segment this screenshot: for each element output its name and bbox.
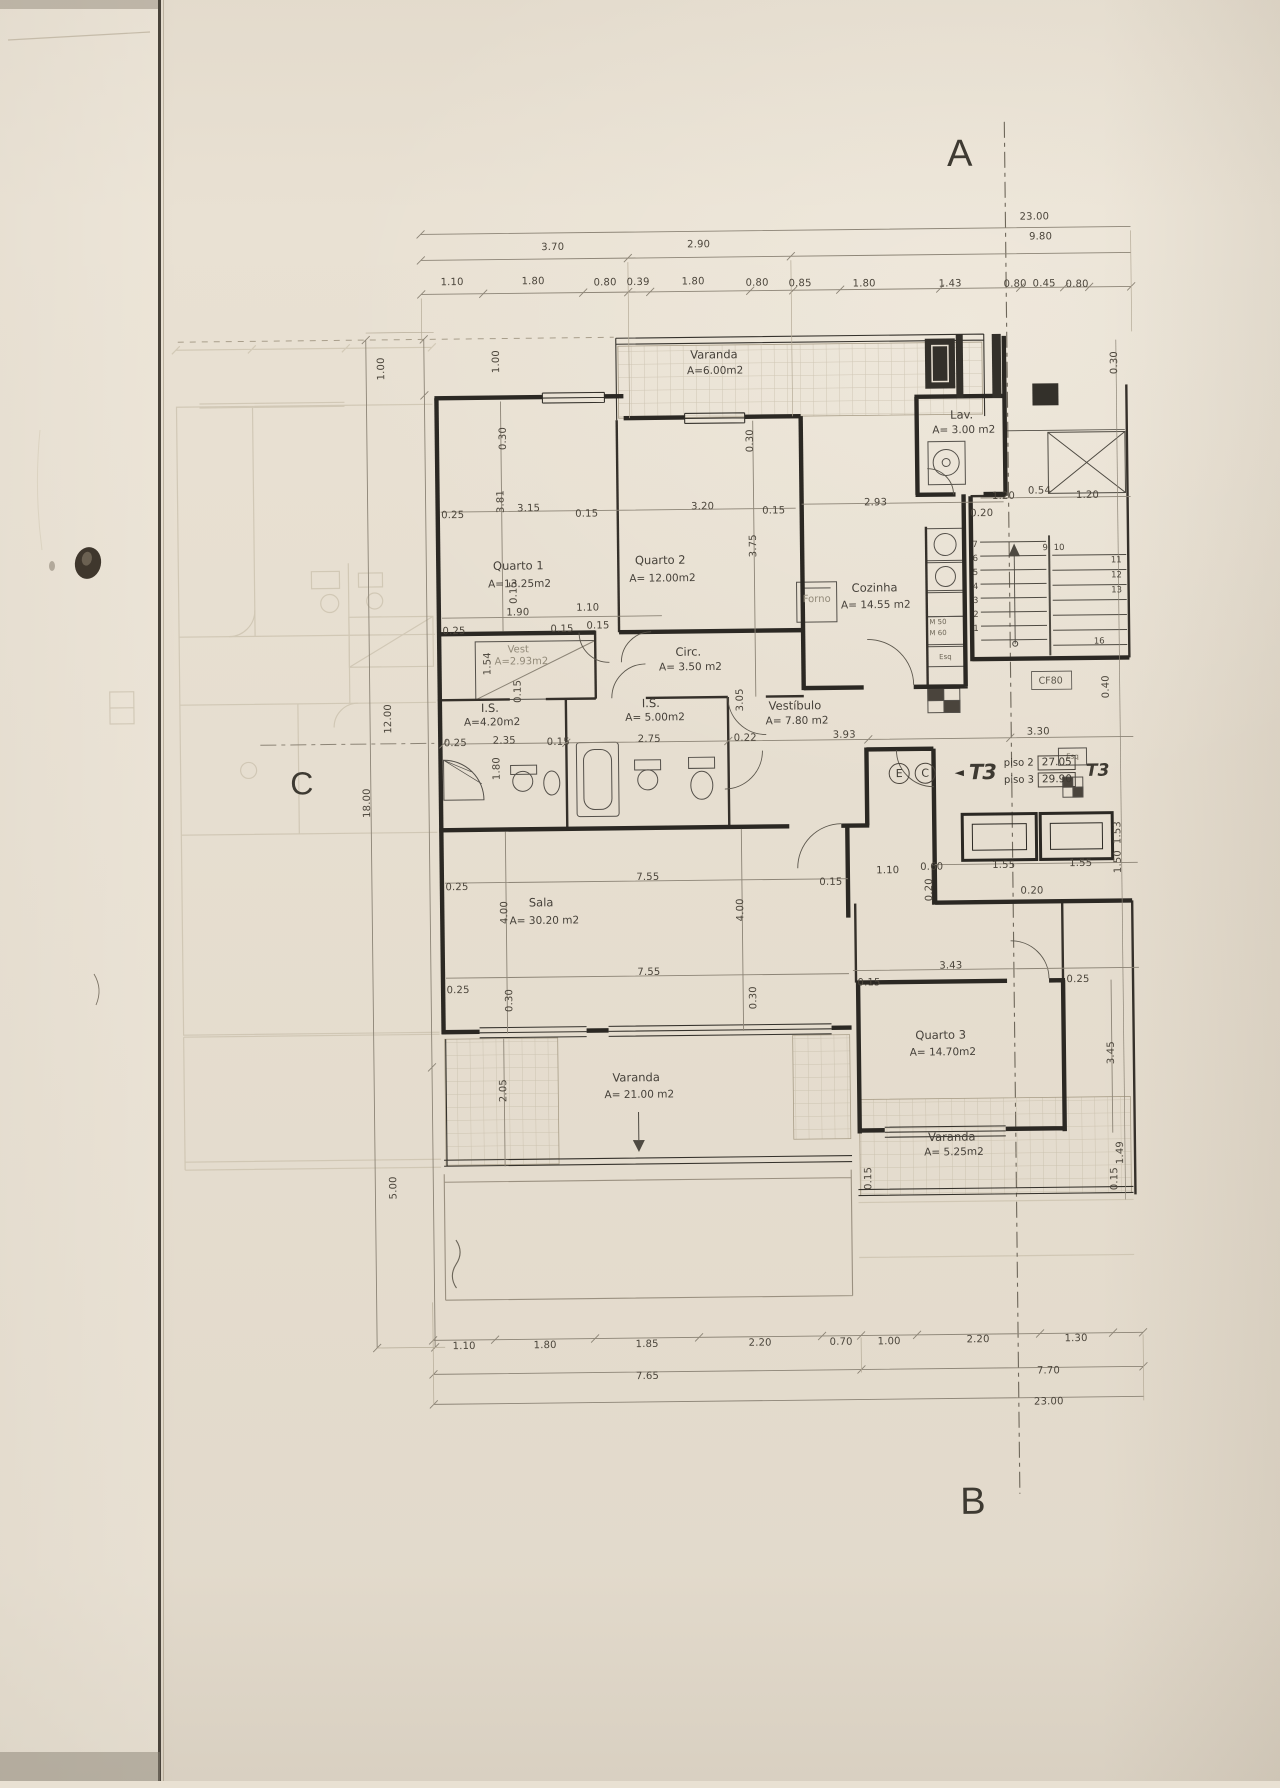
dimension-label: 0.15: [1110, 1167, 1120, 1190]
room-name-label: Varanda: [612, 1072, 660, 1084]
floor-3-area: 29.90: [1038, 772, 1076, 788]
dimension-label: 23.00: [1034, 1397, 1064, 1407]
dimension-label: 0.30: [749, 986, 759, 1009]
room-area-label: A= 14.55 m2: [841, 600, 911, 611]
dimension-label: 0.30: [505, 989, 515, 1012]
dimension-label: 9.80: [1029, 232, 1052, 242]
bidet-icon: [544, 771, 560, 795]
stair-step-number: 12: [1111, 571, 1122, 580]
floor-plan-linework: [0, 0, 1280, 1788]
dimension-label: 1.80: [492, 757, 502, 780]
dimension-label: 1.85: [636, 1340, 659, 1350]
dimension-label: 0.80: [594, 278, 617, 288]
floor-2-area: 27.05: [1038, 755, 1076, 771]
dimension-label: 0.45: [1033, 279, 1056, 289]
annotation-label: Esq: [939, 654, 952, 661]
dimension-label: 2.20: [967, 1335, 990, 1345]
dimension-label: 1.50: [1114, 850, 1124, 873]
room-area-label: A=6.00m2: [687, 366, 743, 377]
section-lines: [175, 122, 1020, 1503]
break-line-wave: [452, 1240, 461, 1288]
floor-2-label: piso 2: [1004, 757, 1034, 768]
dimension-label: 1.80: [682, 277, 705, 287]
dimension-label: 1.80: [522, 277, 545, 287]
dimension-label: 0.15: [586, 621, 609, 631]
dimension-label: 0.15: [819, 878, 842, 888]
lower-terrace-outline: [444, 1170, 852, 1301]
dimension-label: 0.25: [444, 739, 467, 749]
dimension-label: 0.15: [514, 680, 524, 703]
shower-icon: [444, 760, 484, 800]
room-name-label: I.S.: [481, 703, 499, 715]
dimension-label: 0.80: [1066, 280, 1089, 290]
stair-direction-arrow: [1009, 545, 1019, 556]
dimension-label: 18.00: [363, 788, 373, 818]
room-name-label: I.S.: [642, 698, 660, 710]
annotation-label: M 50: [929, 619, 946, 626]
dimension-label: 3.75: [749, 534, 759, 557]
dimension-label: 0.54: [1028, 486, 1051, 496]
dimension-label: 0.15: [864, 1167, 874, 1190]
dimension-label: 5.00: [389, 1176, 399, 1199]
dimension-label: 3.45: [1107, 1041, 1117, 1064]
dimension-label: 3.43: [939, 961, 962, 971]
unit-type-t3-right: T3: [1086, 761, 1110, 781]
dimension-label: 1.55: [1069, 859, 1092, 869]
dimension-label: 1.00: [377, 357, 387, 380]
room-area-label: A= 14.70m2: [910, 1047, 976, 1058]
dimension-label: 12.00: [384, 704, 394, 734]
stair-step-number: 1: [973, 625, 979, 634]
window-sala-left: [480, 1027, 587, 1038]
unit-type-annotation: E C ◄ T3 piso 2 27.05 piso 3 29.90 T3: [888, 747, 1109, 798]
annotation-label: Forno: [803, 595, 831, 605]
room-name-label: Quarto 2: [635, 555, 686, 567]
circle-label-e: E: [889, 762, 910, 783]
dimension-label: 1.43: [939, 279, 962, 289]
dimension-label: 2.90: [687, 240, 710, 250]
room-area-label: A= 30.20 m2: [509, 915, 579, 926]
section-line-a-b: [1004, 122, 1020, 1494]
section-marker-a: A: [947, 133, 973, 176]
dimension-label: 3.70: [541, 243, 564, 253]
room-name-label: Quarto 1: [493, 560, 544, 572]
dimension-label: 0.80: [1004, 280, 1027, 290]
dimension-label: 1.20: [992, 492, 1015, 502]
small-balcony-tiles: [859, 1096, 1131, 1195]
dimension-label: 0.25: [441, 511, 464, 521]
room-area-label: A= 5.25m2: [924, 1147, 984, 1158]
floor-areas: piso 2 27.05 piso 3 29.90: [1004, 755, 1076, 788]
dimension-label: 7.55: [637, 968, 660, 978]
dimension-label: 1.80: [853, 279, 876, 289]
stair-step-number: 5: [973, 569, 979, 578]
annotation-label: Vest: [508, 645, 529, 655]
toilet-icon: [691, 771, 713, 799]
dimension-label: 0.15: [509, 581, 519, 604]
dimension-label: 7.70: [1037, 1366, 1060, 1376]
dimension-label: 7.55: [636, 873, 659, 883]
room-name-label: Lav.: [950, 409, 973, 421]
room-name-label: Varanda: [928, 1131, 976, 1143]
room-name-label: Sala: [529, 897, 554, 909]
dimension-label: 1.00: [878, 1337, 901, 1347]
dimension-label: 2.75: [638, 735, 661, 745]
stair-step-number: 16: [1094, 637, 1105, 646]
dimension-label: 0.70: [830, 1338, 853, 1348]
dimension-label: 0.85: [789, 279, 812, 289]
dimension-label: 7.65: [636, 1372, 659, 1382]
left-arrow-icon: ◄: [955, 765, 964, 779]
dimension-label: 3.81: [496, 490, 506, 513]
room-name-label: Circ.: [675, 647, 701, 659]
dimension-label: 1.30: [1065, 1334, 1088, 1344]
room-area-label: A= 12.00m2: [629, 573, 695, 584]
section-marker-b: B: [960, 1481, 986, 1524]
stove-icon: [928, 688, 960, 712]
room-area-label: A=4.20m2: [464, 717, 520, 728]
room-name-label: Varanda: [690, 349, 738, 361]
stair-void-cross: [1048, 431, 1126, 493]
dimension-label: 0.80: [746, 279, 769, 289]
stair-step-number: 7: [972, 541, 978, 550]
stair-step-number: 9: [1042, 544, 1048, 553]
room-area-label: A= 5.00m2: [625, 712, 685, 723]
room-name-label: Quarto 3: [915, 1030, 966, 1042]
dimension-label: 0.15: [857, 978, 880, 988]
dimension-label: 0.30: [1110, 351, 1120, 374]
dimension-label: 2.93: [864, 498, 887, 508]
dimension-label: 0.25: [1066, 975, 1089, 985]
stair-step-number: 4: [973, 583, 979, 592]
dimension-label: 1.80: [534, 1341, 557, 1351]
dimension-label: 3.05: [736, 688, 746, 711]
dimension-label: 1.53: [1113, 821, 1123, 844]
room-area-label: A= 3.00 m2: [932, 425, 995, 436]
dimension-label: 1.10: [441, 278, 464, 288]
stair-step-number: 10: [1054, 544, 1065, 553]
big-balcony-tiles-right: [793, 1035, 851, 1140]
room-area-label: A= 21.00 m2: [604, 1089, 674, 1100]
dimension-label: 0.25: [447, 986, 470, 996]
dimension-label: 0.15: [550, 625, 573, 635]
elevator-2: [1040, 813, 1113, 860]
stair-step-number: 2: [973, 611, 979, 620]
floor-3-label: piso 3: [1004, 775, 1034, 786]
dimension-label: 1.49: [1116, 1141, 1126, 1164]
dimension-label: 1.10: [576, 603, 599, 613]
elevator-shafts: [962, 813, 1113, 861]
dimension-label: 0.25: [442, 627, 465, 637]
dimension-label: 0.20: [925, 878, 935, 901]
unit-type-t3: T3: [969, 760, 996, 784]
dimension-label: 3.30: [1027, 727, 1050, 737]
room-name-label: Vestíbulo: [769, 700, 822, 712]
dimension-label: 1.54: [483, 652, 493, 675]
dimension-label: 0.20: [970, 509, 993, 519]
dimension-label: 1.55: [992, 861, 1015, 871]
dimension-label: 1.10: [876, 866, 899, 876]
stair-step-number: 6: [973, 555, 979, 564]
dimension-label: 0.22: [734, 734, 757, 744]
dimension-label: 1.10: [453, 1342, 476, 1352]
dimension-label: 0.15: [547, 738, 570, 748]
dimension-label: 3.15: [517, 504, 540, 514]
dimension-label: 0.39: [627, 278, 650, 288]
dimension-label: 1.00: [492, 350, 502, 373]
boundary-dash-line: [178, 337, 614, 342]
annotation-label: A=2.93m2: [495, 657, 549, 668]
room-area-label: A= 7.80 m2: [766, 716, 829, 727]
floor-plan-drawing: VarandaA=6.00m2Quarto 1A=13.25m2Quarto 2…: [0, 0, 1280, 1788]
circle-label-c: C: [915, 762, 936, 783]
dimension-label: 23.00: [1020, 212, 1050, 222]
dimension-label: 0.15: [575, 509, 598, 519]
dimension-label: 0.40: [1102, 675, 1112, 698]
room-name-label: Cozinha: [852, 582, 898, 594]
room-area-label: A= 3.50 m2: [659, 662, 722, 673]
duct-box: [1032, 383, 1058, 405]
dimension-label: 1.20: [1076, 491, 1099, 501]
dimension-label: 0.15: [762, 506, 785, 516]
annotation-label: CF80: [1039, 676, 1063, 686]
stair-step-number: 13: [1111, 586, 1122, 595]
dimension-label: 0.25: [445, 883, 468, 893]
dimension-label: 2.05: [499, 1079, 509, 1102]
section-marker-c: C: [290, 765, 314, 802]
bathtub-icon: [576, 742, 619, 816]
dimension-label: 0.30: [746, 429, 756, 452]
dimension-label: 3.20: [691, 502, 714, 512]
dimension-label: 2.20: [749, 1339, 772, 1349]
dimension-label: 2.35: [493, 736, 516, 746]
elevator-1: [962, 814, 1037, 861]
dimension-label: 0.60: [920, 863, 943, 873]
dimension-label: 0.30: [499, 427, 509, 450]
dimension-label: 3.93: [833, 731, 856, 741]
dimension-label: 1.90: [506, 608, 529, 618]
stair-step-number: 3: [973, 597, 979, 606]
window-quarto1: [542, 392, 604, 403]
window-sala-right: [609, 1024, 832, 1037]
dimension-label: 0.20: [1020, 886, 1043, 896]
dimension-label: 4.00: [500, 901, 510, 924]
annotation-label: M 60: [929, 630, 946, 637]
balcony-drain-arrow: [633, 1112, 645, 1152]
section-line-c: [260, 743, 434, 745]
dimension-label: 4.00: [736, 898, 746, 921]
stair-step-number: 11: [1111, 556, 1122, 565]
